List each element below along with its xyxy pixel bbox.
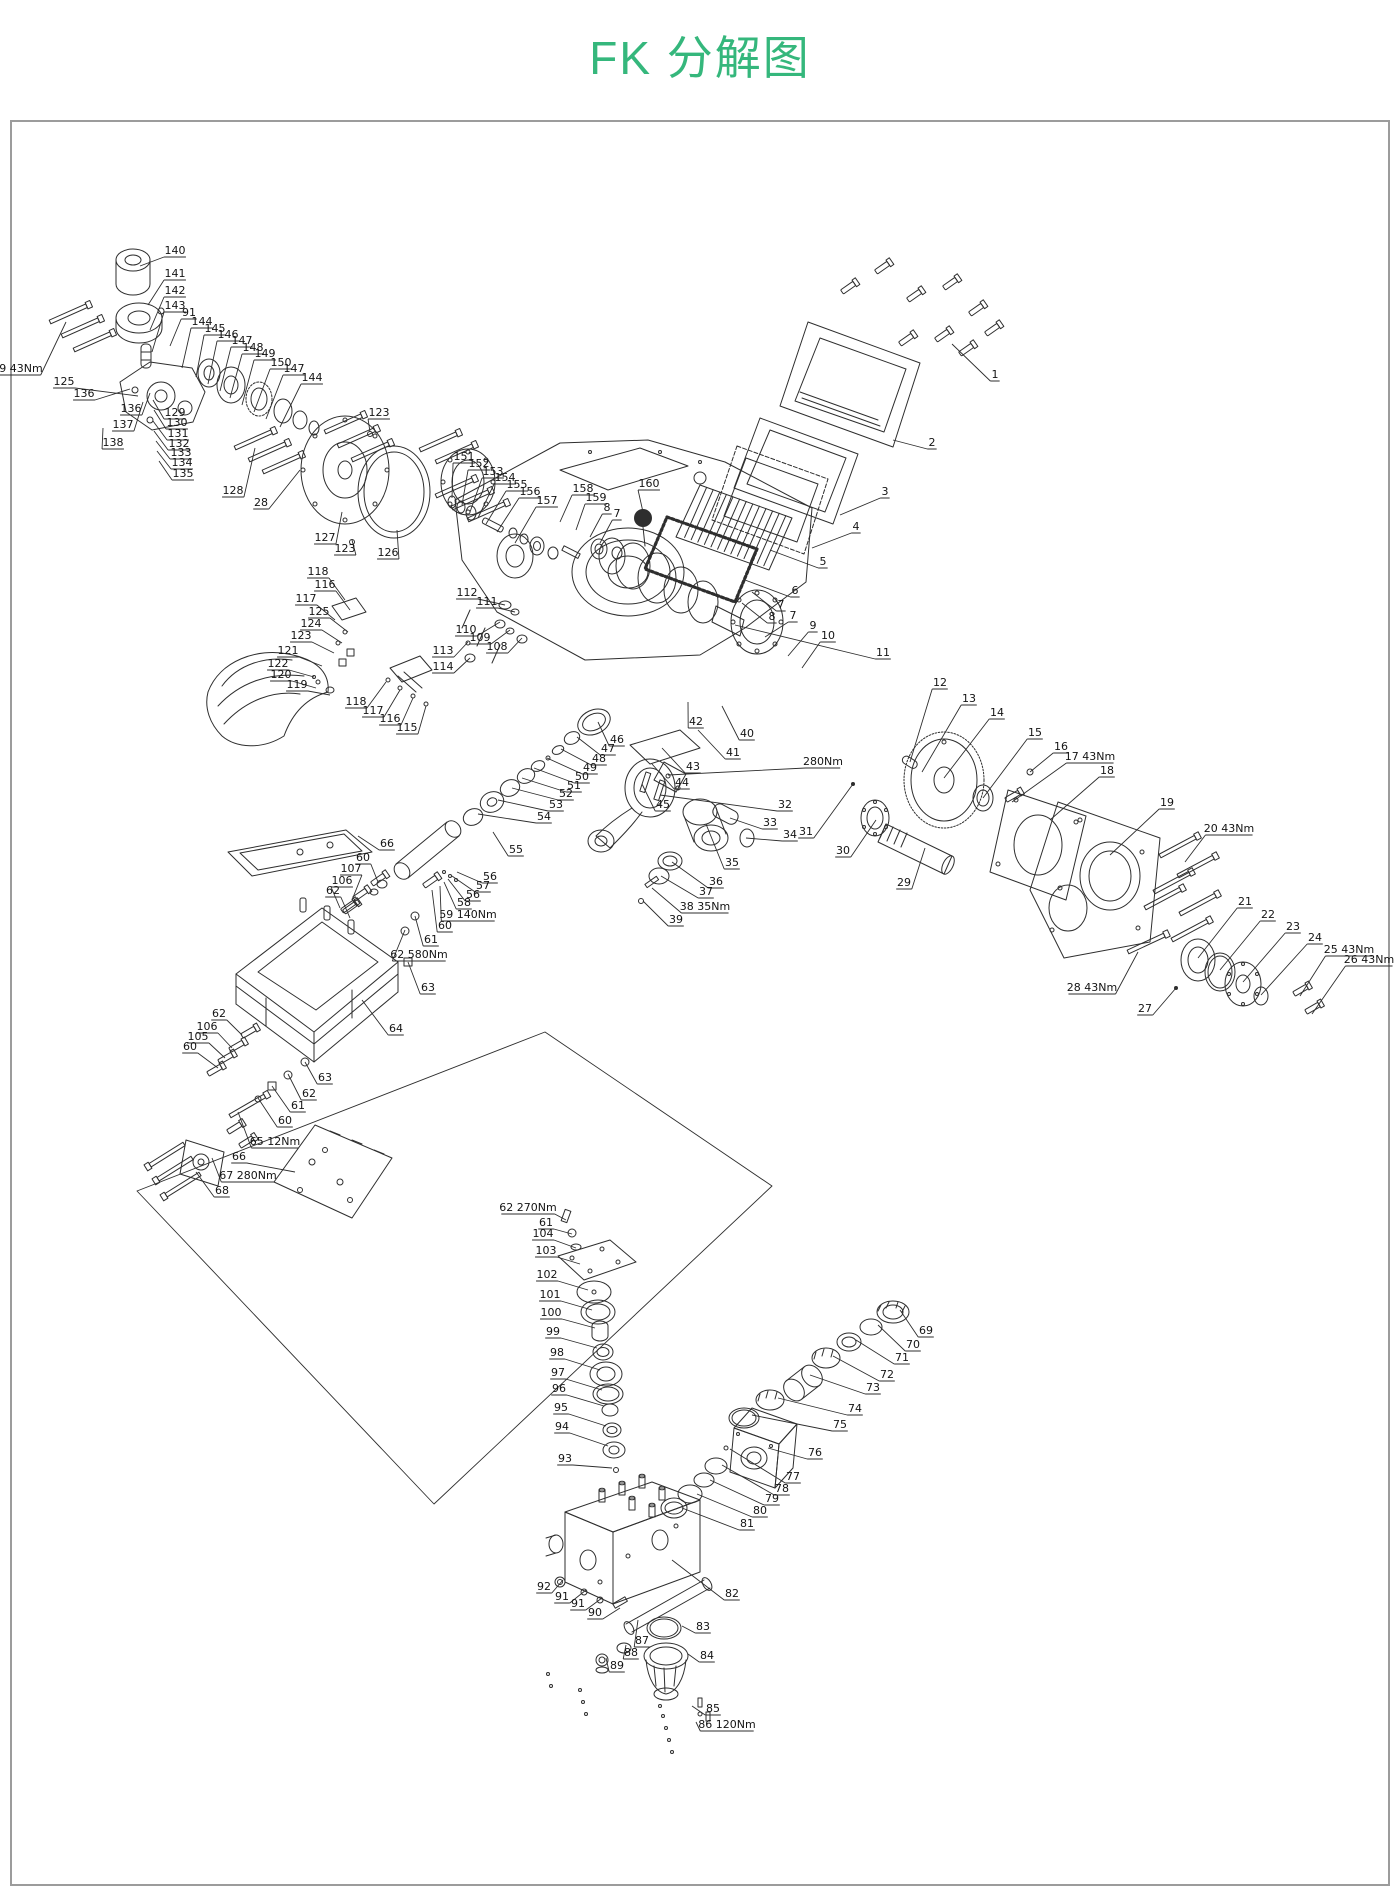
leader-line: [802, 642, 836, 668]
leader-line: [554, 1433, 608, 1446]
part-label: 135: [173, 467, 194, 480]
part-label: 111: [477, 595, 498, 608]
part-label: 61: [424, 933, 438, 946]
leader-line: [576, 504, 607, 530]
part-label: 73: [866, 1381, 880, 1394]
part-label: 41: [726, 746, 740, 759]
machine-line-art: [49, 249, 1325, 1754]
part-label: 160: [639, 477, 660, 490]
part-label: 27: [1138, 1002, 1152, 1015]
part-label: 2: [929, 436, 936, 449]
leader-line: [515, 507, 558, 543]
part-label: 136: [74, 387, 95, 400]
leader-line: [152, 312, 186, 352]
leader-line: [1261, 944, 1323, 995]
part-label: 45: [656, 798, 670, 811]
part-label: 157: [537, 494, 558, 507]
part-label: 136: [121, 402, 142, 415]
part-label: 115: [397, 721, 418, 734]
part-label: 126: [378, 546, 399, 559]
part-label: 7: [614, 507, 621, 520]
part-label: 144: [302, 371, 323, 384]
part-label: 86 120Nm: [698, 1718, 755, 1731]
part-label: 43: [686, 760, 700, 773]
part-label: 22: [1261, 908, 1275, 921]
part-label: 100: [541, 1306, 562, 1319]
part-label: 64: [389, 1022, 403, 1035]
part-label: 125: [54, 375, 75, 388]
part-label: 10: [821, 629, 835, 642]
part-label: 31: [799, 825, 813, 838]
part-label: 62: [326, 884, 340, 897]
part-label: 62 580Nm: [390, 948, 447, 961]
part-label: 81: [740, 1517, 754, 1530]
part-label: 101: [540, 1288, 561, 1301]
part-label: 112: [457, 586, 478, 599]
part-label: 74: [848, 1402, 862, 1415]
part-label: 60: [278, 1114, 292, 1127]
part-label: 142: [165, 284, 186, 297]
part-label: 76: [808, 1446, 822, 1459]
part-label: 55: [509, 843, 523, 856]
part-label: 140: [165, 244, 186, 257]
part-label: 141: [165, 267, 186, 280]
part-label: 93: [558, 1452, 572, 1465]
part-labels-layer: 1401411421439114414514614714814915014714…: [0, 244, 1394, 1731]
part-label: 61: [291, 1099, 305, 1112]
part-label: 24: [1308, 931, 1322, 944]
leader-line: [497, 498, 541, 532]
part-label: 29: [897, 876, 911, 889]
part-label: 44: [675, 776, 689, 789]
part-label: 20 43Nm: [1204, 822, 1254, 835]
part-label: 104: [533, 1227, 554, 1240]
part-label: 8: [769, 610, 776, 623]
part-label: 3: [882, 485, 889, 498]
part-label: 75: [833, 1418, 847, 1431]
leader-line: [600, 520, 622, 543]
part-label: 1: [992, 368, 999, 381]
leader-line: [1312, 966, 1393, 1014]
leader-line: [280, 384, 323, 427]
part-label: 71: [895, 1351, 909, 1364]
part-label: 80: [753, 1504, 767, 1517]
part-label: 54: [537, 810, 551, 823]
leader-line: [501, 1214, 566, 1220]
part-label: 65 12Nm: [250, 1135, 300, 1148]
part-label: 63: [421, 981, 435, 994]
leader-line: [660, 795, 793, 811]
part-label: 12: [933, 676, 947, 689]
part-label: 108: [487, 640, 508, 653]
part-label: 19: [1160, 796, 1174, 809]
part-label: 32: [778, 798, 792, 811]
leader-line: [922, 705, 977, 772]
leader-line: [182, 1053, 218, 1068]
exploded-diagram: 1401411421439114414514614714814915014714…: [0, 0, 1400, 1895]
part-label: 88: [624, 1646, 638, 1659]
part-label: 40: [740, 727, 754, 740]
part-label: 30: [836, 844, 850, 857]
part-label: 66: [232, 1150, 246, 1163]
part-label: 114: [433, 660, 454, 673]
part-label: 8: [604, 501, 611, 514]
part-label: 72: [880, 1368, 894, 1381]
part-label: 53: [549, 798, 563, 811]
part-label: 63: [318, 1071, 332, 1084]
part-label: 83: [696, 1620, 710, 1633]
part-label: 128: [223, 484, 244, 497]
part-label: 62: [212, 1007, 226, 1020]
part-label: 34: [783, 828, 797, 841]
part-label: 62 270Nm: [499, 1201, 556, 1214]
part-label: 37: [699, 885, 713, 898]
part-label: 102: [537, 1268, 558, 1281]
part-label: 92: [537, 1580, 551, 1593]
part-label: 69: [919, 1324, 933, 1337]
part-label: 60: [438, 919, 452, 932]
part-label: 13: [962, 692, 976, 705]
part-label: 18: [1100, 764, 1114, 777]
part-label: 121: [278, 644, 299, 657]
part-label: 35: [725, 856, 739, 869]
part-label: 103: [536, 1244, 557, 1257]
part-label: 137: [113, 418, 134, 431]
part-label: 42: [689, 715, 703, 728]
part-label: 7: [778, 598, 785, 611]
part-label: 91: [555, 1590, 569, 1603]
leader-line: [1030, 753, 1069, 772]
part-label: 98: [550, 1346, 564, 1359]
leader-line: [910, 689, 948, 762]
part-label: 14: [990, 706, 1004, 719]
part-label: 67 280Nm: [219, 1169, 276, 1182]
leader-line: [1243, 933, 1301, 982]
leader-line: [557, 1465, 612, 1468]
part-label: 99: [546, 1325, 560, 1338]
part-label: 96: [552, 1382, 566, 1395]
part-label: 23: [1286, 920, 1300, 933]
part-label: 6: [792, 584, 799, 597]
part-label: 7: [790, 609, 797, 622]
part-label: 4: [853, 520, 860, 533]
part-label: 91: [571, 1597, 585, 1610]
part-label: 21: [1238, 895, 1252, 908]
leader-line: [140, 257, 186, 266]
part-label: 28: [254, 496, 268, 509]
leader-line: [53, 388, 138, 396]
part-label: 89: [610, 1659, 624, 1672]
part-label: 95: [554, 1401, 568, 1414]
part-label: 79: [765, 1492, 779, 1505]
leader-line: [1050, 777, 1115, 820]
leader-line: [1198, 908, 1253, 958]
leader-line: [638, 490, 660, 512]
part-label: 280Nm: [803, 755, 843, 768]
part-label: 118: [308, 565, 329, 578]
part-label: 68: [215, 1184, 229, 1197]
part-label: 26 43Nm: [1344, 953, 1394, 966]
part-label: 82: [725, 1587, 739, 1600]
part-label: 17 43Nm: [1065, 750, 1115, 763]
part-label: 97: [551, 1366, 565, 1379]
part-label: 39: [669, 913, 683, 926]
part-label: 38 35Nm: [680, 900, 730, 913]
part-label: 116: [315, 578, 336, 591]
part-label: 66: [380, 837, 394, 850]
part-label: 9: [810, 619, 817, 632]
part-label: 70: [906, 1338, 920, 1351]
part-label: 138: [103, 436, 124, 449]
part-label: 90: [588, 1606, 602, 1619]
leader-line: [368, 419, 390, 432]
part-label: 94: [555, 1420, 569, 1433]
part-label: 33: [763, 816, 777, 829]
part-label: 28 43Nm: [1067, 981, 1117, 994]
leader-line: [840, 498, 890, 515]
part-label: 119: [287, 678, 308, 691]
part-label: 113: [433, 644, 454, 657]
part-label: 127: [315, 531, 336, 544]
part-label: 123: [369, 406, 390, 419]
part-label: 60: [183, 1040, 197, 1053]
part-label: 84: [700, 1649, 714, 1662]
part-label: 5: [820, 555, 827, 568]
part-label: 15: [1028, 726, 1042, 739]
part-label: 85: [706, 1702, 720, 1715]
part-label: 123: [335, 542, 356, 555]
leader-line: [812, 533, 861, 548]
part-label: 11: [876, 646, 890, 659]
part-label: 139 43Nm: [0, 362, 43, 375]
part-label: 123: [291, 629, 312, 642]
part-label: 117: [296, 592, 317, 605]
leader-line: [535, 1257, 580, 1264]
